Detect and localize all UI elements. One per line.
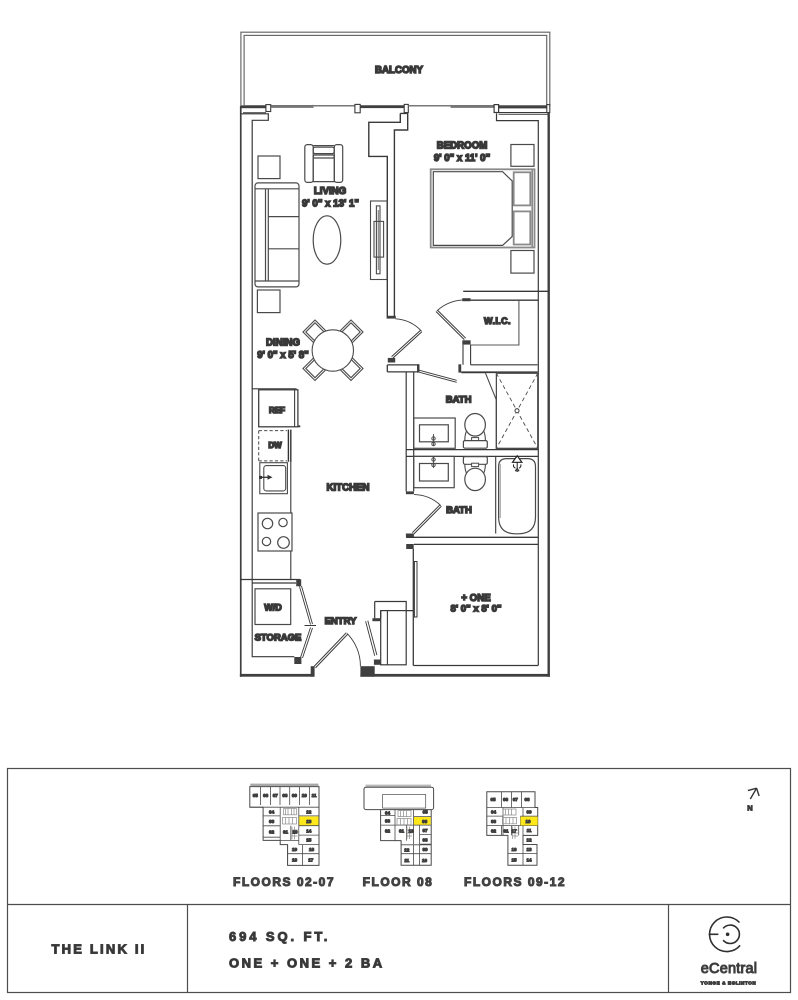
svg-text:02: 02 [385, 829, 391, 834]
svg-text:10: 10 [302, 793, 308, 798]
svg-text:eCentral: eCentral [701, 961, 757, 977]
svg-text:9' 0" x 5' 8": 9' 0" x 5' 8" [257, 350, 309, 361]
svg-text:03: 03 [385, 819, 391, 824]
svg-text:04: 04 [385, 811, 391, 816]
svg-text:14: 14 [526, 858, 532, 863]
svg-text:19: 19 [292, 847, 298, 852]
svg-text:02: 02 [491, 829, 497, 834]
svg-text:08: 08 [282, 793, 288, 798]
svg-text:12: 12 [526, 838, 532, 843]
svg-text:07: 07 [422, 828, 428, 833]
svg-text:17: 17 [308, 858, 314, 863]
svg-text:06: 06 [422, 819, 428, 824]
svg-text:15: 15 [306, 838, 312, 843]
svg-text:FLOORS 02-07: FLOORS 02-07 [233, 875, 335, 889]
svg-text:01: 01 [283, 830, 289, 835]
svg-text:YONGE & EGLINTON: YONGE & EGLINTON [701, 981, 757, 986]
svg-text:10: 10 [422, 858, 428, 863]
svg-text:12: 12 [306, 810, 312, 815]
svg-text:01: 01 [399, 829, 405, 834]
svg-text:13: 13 [306, 819, 312, 824]
svg-text:REF: REF [269, 406, 285, 415]
svg-text:DW: DW [268, 441, 282, 450]
svg-text:03: 03 [491, 819, 497, 824]
svg-text:W/D: W/D [264, 603, 282, 613]
svg-text:DINING: DINING [266, 338, 300, 349]
svg-text:11: 11 [312, 793, 317, 798]
svg-text:694 SQ. FT.: 694 SQ. FT. [229, 929, 330, 944]
svg-text:9' 0" x 13' 1": 9' 0" x 13' 1" [302, 199, 359, 210]
svg-text:N: N [747, 804, 752, 813]
svg-text:14: 14 [306, 829, 312, 834]
svg-text:02: 02 [269, 830, 275, 835]
svg-text:16: 16 [309, 847, 315, 852]
svg-text:FLOORS 09-12: FLOORS 09-12 [464, 875, 566, 889]
svg-text:KITCHEN: KITCHEN [326, 483, 369, 494]
svg-text:09: 09 [292, 793, 298, 798]
svg-text:15: 15 [511, 858, 517, 863]
svg-text:09: 09 [526, 810, 532, 815]
svg-text:08: 08 [422, 837, 428, 842]
svg-text:W.I.C.: W.I.C. [484, 316, 511, 326]
svg-text:8' 0" x 8' 0": 8' 0" x 8' 0" [451, 604, 502, 615]
svg-text:10: 10 [525, 819, 531, 824]
svg-text:09: 09 [422, 847, 428, 852]
svg-text:05: 05 [253, 793, 259, 798]
svg-text:BATH: BATH [446, 395, 472, 406]
svg-text:FLOOR 08: FLOOR 08 [363, 875, 434, 889]
svg-text:20: 20 [292, 830, 298, 835]
svg-text:07: 07 [273, 793, 279, 798]
svg-text:LIVING: LIVING [314, 186, 346, 197]
svg-text:08: 08 [524, 797, 530, 802]
svg-text:ENTRY: ENTRY [325, 616, 358, 627]
svg-text:01: 01 [503, 829, 509, 834]
svg-text:9' 0" x 11' 0": 9' 0" x 11' 0" [434, 153, 490, 164]
svg-text:BATH: BATH [446, 505, 472, 516]
svg-text:07: 07 [513, 797, 519, 802]
svg-text:+ ONE: + ONE [461, 593, 491, 604]
svg-text:11: 11 [527, 828, 532, 833]
svg-text:13: 13 [526, 847, 532, 852]
svg-text:17: 17 [511, 829, 517, 834]
svg-text:06: 06 [503, 797, 509, 802]
svg-text:13: 13 [408, 829, 414, 834]
svg-text:16: 16 [511, 847, 517, 852]
svg-text:THE LINK II: THE LINK II [52, 942, 147, 957]
svg-text:STORAGE: STORAGE [255, 633, 302, 644]
svg-text:11: 11 [404, 858, 409, 863]
svg-text:04: 04 [491, 810, 497, 815]
svg-text:ONE + ONE + 2 BA: ONE + ONE + 2 BA [229, 956, 385, 971]
svg-text:12: 12 [404, 848, 410, 853]
svg-text:04: 04 [269, 810, 275, 815]
svg-text:03: 03 [269, 819, 275, 824]
svg-text:18: 18 [292, 858, 298, 863]
svg-text:BALCONY: BALCONY [375, 65, 423, 76]
svg-text:BEDROOM: BEDROOM [437, 141, 488, 152]
svg-text:05: 05 [490, 797, 496, 802]
svg-text:05: 05 [423, 810, 429, 815]
svg-text:06: 06 [263, 793, 269, 798]
